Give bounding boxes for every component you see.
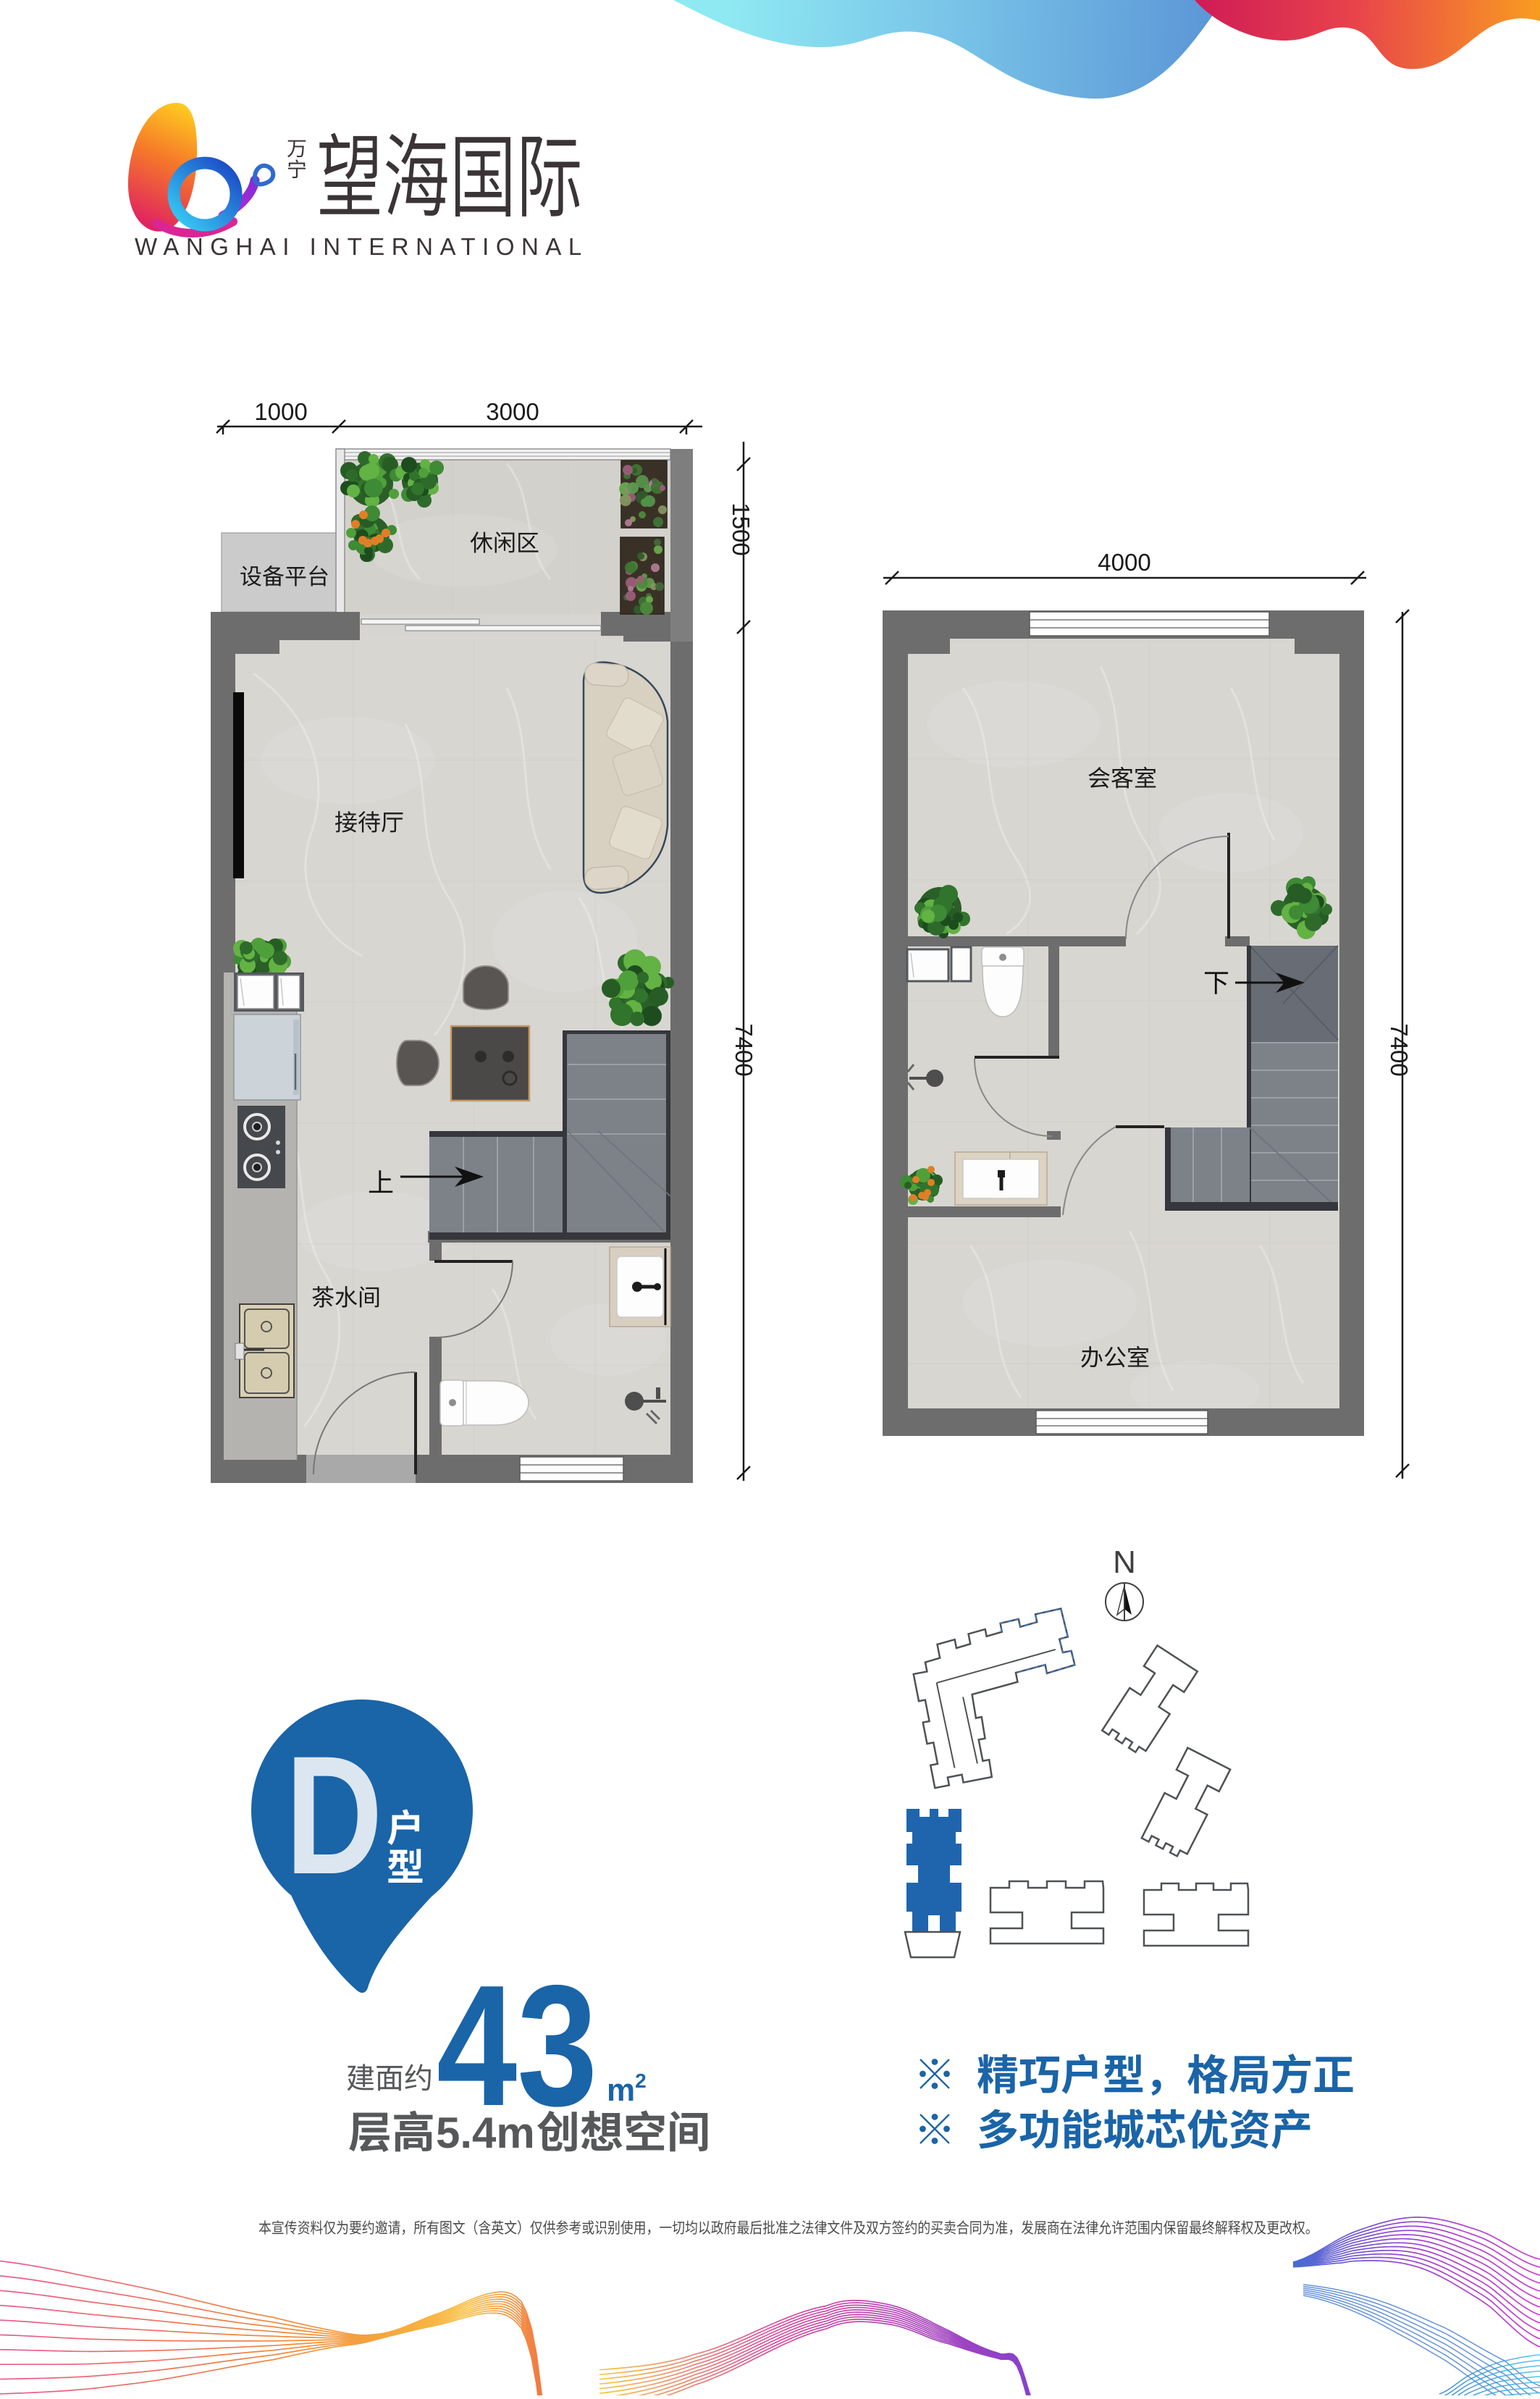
svg-text:m2: m2 xyxy=(607,2070,647,2108)
svg-text:1500: 1500 xyxy=(728,503,754,555)
svg-text:7400: 7400 xyxy=(731,1023,757,1076)
svg-text:3000: 3000 xyxy=(486,398,539,425)
svg-text:N: N xyxy=(1113,1545,1136,1580)
svg-text:WANGHAI INTERNATIONAL: WANGHAI INTERNATIONAL xyxy=(135,233,589,260)
svg-text:4000: 4000 xyxy=(1098,549,1150,576)
svg-text:D: D xyxy=(285,1721,383,1909)
svg-text:5.4m: 5.4m xyxy=(436,2109,535,2157)
svg-text:7400: 7400 xyxy=(1386,1023,1413,1076)
svg-text:1000: 1000 xyxy=(254,398,307,425)
